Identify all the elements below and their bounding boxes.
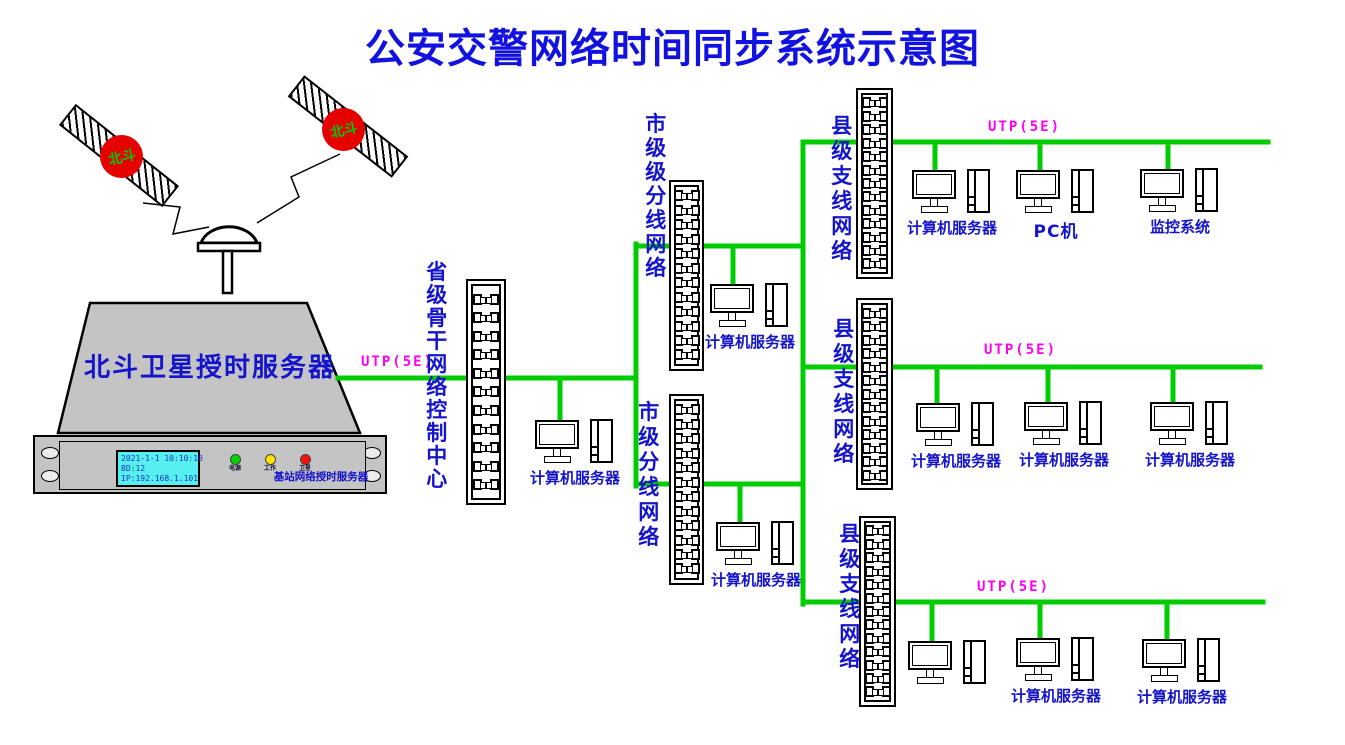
switch-county-3 [859,516,896,707]
monitor-screen [1020,174,1056,195]
computer-county2-server-1: 计算机服务器 [916,403,996,449]
rj45-port-icon [865,673,874,684]
rj45-port-icon [865,633,874,644]
rj45-port-icon [691,321,700,332]
rj45-port-icon [879,111,888,122]
port-row [865,593,891,604]
beidou-satellite-1: 北斗 [40,100,200,220]
rj45-port-icon [691,520,700,531]
rj45-port-icon [879,402,888,413]
port-row [865,633,891,644]
rj45-port-icon [691,448,700,459]
rj45-port-icon [879,245,888,256]
switch-county-1 [856,88,893,279]
rj45-port-icon [882,646,891,657]
rj45-port-icon [674,263,683,274]
rj45-port-icon [490,312,499,323]
rj45-port-icon [473,405,482,416]
port-row [862,191,888,202]
port-row [862,470,888,481]
label-municipal-1: 市级级分线网络 [644,112,668,280]
device-label: 监控系统 [1122,216,1238,237]
rj45-port-icon [490,386,499,397]
rj45-port-icon [879,348,888,359]
computer-county1-monitoring: 监控系统 [1140,169,1220,215]
port-row [674,263,700,274]
rack-hole [41,447,59,459]
rj45-port-icon [865,579,874,590]
computer-monitor-icon [1140,169,1184,198]
port-row [862,456,888,467]
computer-county3-server-3: 计算机服务器 [1142,639,1222,685]
rj45-port-icon [879,138,888,149]
rj45-port-icon [862,308,871,319]
port-row [862,362,888,373]
monitor-screen [920,407,956,428]
rj45-port-icon [473,331,482,342]
rj45-port-icon [674,234,683,245]
switch-county-2 [856,298,893,490]
switch-body [471,284,501,500]
rj45-port-icon [862,389,871,400]
rj45-port-icon [674,491,683,502]
monitor-screen [912,645,948,666]
port-row [674,433,700,444]
port-row [674,219,700,230]
port-row [473,461,499,472]
computer-county2-server-3: 计算机服务器 [1150,402,1230,448]
rj45-port-icon [490,442,499,453]
port-row [862,258,888,269]
computer-monitor-icon [1142,639,1186,668]
computer-county2-server-2: 计算机服务器 [1024,402,1104,448]
rj45-port-icon [691,219,700,230]
monitor-screen [916,174,952,195]
port-row [674,535,700,546]
port-row [674,477,700,488]
rj45-port-icon [473,349,482,360]
port-row [862,375,888,386]
rj45-port-icon [490,405,499,416]
port-row [865,646,891,657]
rj45-port-icon [691,306,700,317]
rj45-port-icon [674,462,683,473]
rj45-port-icon [865,552,874,563]
computer-tower-icon [590,419,613,463]
rj45-port-icon [490,461,499,472]
rj45-port-icon [879,375,888,386]
rj45-port-icon [882,673,891,684]
rj45-port-icon [862,362,871,373]
rj45-port-icon [882,593,891,604]
page-title: 公安交警网络时间同步系统示意图 [0,16,1345,74]
computer-county1-server: 计算机服务器 [912,170,992,216]
rj45-port-icon [490,349,499,360]
device-label: 计算机服务器 [1132,449,1248,470]
rj45-port-icon [473,479,482,490]
rj45-port-icon [862,335,871,346]
rj45-port-icon [674,520,683,531]
device-label: 计算机服务器 [517,467,633,488]
port-row [865,552,891,563]
lcd-time: 2021-1-1 10:10:10 [121,454,195,464]
switch-municipal-2 [669,394,704,585]
rj45-port-icon [879,97,888,108]
port-row [674,234,700,245]
monitor-screen [720,526,756,547]
monitor-screen [1028,406,1064,427]
rj45-port-icon [674,477,683,488]
rj45-port-icon [862,321,871,332]
utp-label-county-2: UTP(5E) [984,342,1057,358]
computer-tower-icon [1071,169,1094,213]
switch-body [864,521,891,702]
rj45-port-icon [674,549,683,560]
port-row [865,579,891,590]
rj45-port-icon [879,308,888,319]
rj45-port-icon [879,258,888,269]
rj45-port-icon [879,456,888,467]
rj45-port-icon [674,277,683,288]
port-row [674,404,700,415]
port-row [865,539,891,550]
gps-antenna-mast-icon [223,251,232,293]
device-label: 计算机服务器 [1006,449,1122,470]
front-panel-face: 2021-1-1 10:10:10 BD:12 IP:192.168.1.101… [59,441,366,490]
rj45-port-icon [862,375,871,386]
device-label: 计算机服务器 [698,569,814,590]
monitor-base [921,206,948,213]
monitor-screen [539,424,575,445]
monitor-screen [1154,406,1190,427]
computer-monitor-icon [1150,402,1194,431]
switch-body [674,399,699,580]
gps-antenna-dome-icon [201,227,257,243]
rj45-port-icon [879,218,888,229]
monitor-base [719,320,746,327]
label-county-2: 县级支线网络 [832,317,856,467]
satellite-body-icon: 北斗 [100,135,143,178]
rj45-port-icon [865,566,874,577]
led-dot [265,454,276,465]
rj45-port-icon [879,205,888,216]
rj45-port-icon [865,593,874,604]
monitor-base [917,677,944,684]
computer-county3-server-1 [908,641,988,687]
rj45-port-icon [879,362,888,373]
label-county-1: 县级支线网络 [830,114,854,264]
computer-tower-icon [963,640,986,684]
rj45-port-icon [882,579,891,590]
rj45-port-icon [473,294,482,305]
monitor-screen [1146,643,1182,664]
device-label: 计算机服务器 [894,217,1010,238]
rj45-port-icon [879,389,888,400]
rj45-port-icon [490,294,499,305]
port-row [865,606,891,617]
port-row [862,321,888,332]
monitor-base [1025,206,1052,213]
front-panel-model-label: 基站网络授时服务器 [265,469,377,484]
computer-tower-icon [771,521,794,565]
rj45-port-icon [862,258,871,269]
port-row [862,232,888,243]
rj45-port-icon [882,686,891,697]
computer-county3-server-2: 计算机服务器 [1016,638,1096,684]
rj45-port-icon [674,219,683,230]
rj45-port-icon [674,248,683,259]
port-row [674,277,700,288]
computer-tower-icon [967,169,990,213]
rj45-port-icon [691,549,700,560]
rj45-port-icon [865,539,874,550]
port-row [862,218,888,229]
rj45-port-icon [674,349,683,360]
rj45-port-icon [691,462,700,473]
port-row [862,443,888,454]
port-row [862,138,888,149]
monitor-base [1151,675,1178,682]
timing-server-name: 北斗卫星授时服务器 [75,347,345,384]
computer-tower-icon [1071,637,1094,681]
rj45-port-icon [879,165,888,176]
port-row [674,491,700,502]
computer-tower-icon [1195,168,1218,212]
port-row [674,321,700,332]
label-provincial-backbone: 省级骨干网络控制中心 [425,261,449,491]
rj45-port-icon [862,245,871,256]
computer-municipal-1-server: 计算机服务器 [710,284,790,330]
rj45-port-icon [674,404,683,415]
rj45-port-icon [879,151,888,162]
monitor-base [925,439,952,446]
rj45-port-icon [691,292,700,303]
rj45-port-icon [674,535,683,546]
device-label: 计算机服务器 [1124,686,1240,707]
rj45-port-icon [865,660,874,671]
port-row [862,178,888,189]
rj45-port-icon [862,456,871,467]
rj45-port-icon [691,263,700,274]
monitor-base [1149,205,1176,212]
computer-monitor-icon [1024,402,1068,431]
rj45-port-icon [862,191,871,202]
rj45-port-icon [862,218,871,229]
monitor-screen [1144,173,1180,194]
rj45-port-icon [862,138,871,149]
rj45-port-icon [882,606,891,617]
satellite-body-icon: 北斗 [322,108,365,151]
rj45-port-icon [691,477,700,488]
monitor-base [544,456,571,463]
computer-monitor-icon [916,403,960,432]
rack-hole [41,470,59,482]
rj45-port-icon [490,368,499,379]
device-label: 计算机服务器 [998,685,1114,706]
port-row [473,442,499,453]
monitor-base [1025,674,1052,681]
switch-body [861,303,888,485]
computer-county1-pc: PC机 [1016,170,1096,216]
rj45-port-icon [862,111,871,122]
rj45-port-icon [691,234,700,245]
rj45-port-icon [862,443,871,454]
port-row [862,335,888,346]
rj45-port-icon [674,335,683,346]
computer-tower-icon [1197,638,1220,682]
rj45-port-icon [691,190,700,201]
port-row [473,368,499,379]
rj45-port-icon [865,619,874,630]
led-dot [300,454,311,465]
port-row [862,416,888,427]
monitor-screen [1020,642,1056,663]
port-row [473,405,499,416]
port-row [674,292,700,303]
timing-server-front-panel: 2021-1-1 10:10:10 BD:12 IP:192.168.1.101… [33,435,387,494]
port-row [862,97,888,108]
lcd-ip: IP:192.168.1.101 [121,474,195,484]
port-row [674,448,700,459]
port-row [674,563,700,574]
rj45-port-icon [691,506,700,517]
port-row [674,205,700,216]
port-row [862,429,888,440]
rj45-port-icon [862,97,871,108]
computer-tower-icon [1205,401,1228,445]
port-row [862,389,888,400]
rj45-port-icon [865,525,874,536]
rj45-port-icon [879,321,888,332]
rj45-port-icon [674,190,683,201]
lcd-display: 2021-1-1 10:10:10 BD:12 IP:192.168.1.101 [116,450,200,487]
port-row [865,660,891,671]
port-row [862,151,888,162]
port-row [862,402,888,413]
rj45-port-icon [674,448,683,459]
rj45-port-icon [879,178,888,189]
rj45-port-icon [862,470,871,481]
rj45-port-icon [691,433,700,444]
port-row [473,386,499,397]
rj45-port-icon [882,552,891,563]
computer-tower-icon [971,402,994,446]
device-label: 计算机服务器 [692,331,808,352]
diagram-canvas: 公安交警网络时间同步系统示意图 北斗 北斗 北斗卫星授时服务器 2021-1-1… [0,0,1345,745]
led-power: 电源 [222,454,248,472]
port-row [862,245,888,256]
rj45-port-icon [674,563,683,574]
rj45-port-icon [879,443,888,454]
utp-label-county-3: UTP(5E) [977,579,1050,595]
computer-monitor-icon [908,641,952,670]
led-dot [230,454,241,465]
port-row [865,525,891,536]
rj45-port-icon [862,348,871,359]
device-label: PC机 [998,217,1114,242]
rj45-port-icon [882,633,891,644]
port-row [862,124,888,135]
port-row [862,308,888,319]
rj45-port-icon [691,248,700,259]
rj45-port-icon [865,646,874,657]
port-row [473,349,499,360]
switch-body [861,93,888,274]
port-row [674,462,700,473]
port-row [865,686,891,697]
rj45-port-icon [674,419,683,430]
rj45-port-icon [879,124,888,135]
port-row [674,190,700,201]
rj45-port-icon [862,402,871,413]
computer-monitor-icon [1016,638,1060,667]
rj45-port-icon [879,416,888,427]
rj45-port-icon [691,419,700,430]
computer-monitor-icon [710,284,754,313]
rj45-port-icon [882,566,891,577]
computer-provincial-server: 计算机服务器 [535,420,615,466]
led-label: 电源 [222,465,248,472]
port-row [473,424,499,435]
beidou-satellite-2: 北斗 [270,70,430,190]
port-row [674,248,700,259]
computer-tower-icon [1079,401,1102,445]
monitor-base [725,558,752,565]
rj45-port-icon [691,404,700,415]
utp-label-county-1: UTP(5E) [988,119,1061,135]
rj45-port-icon [473,368,482,379]
rj45-port-icon [865,686,874,697]
label-county-3: 县级支线网络 [838,522,862,672]
rj45-port-icon [473,386,482,397]
device-label: 计算机服务器 [898,450,1014,471]
port-row [862,111,888,122]
rj45-port-icon [473,424,482,435]
rj45-port-icon [879,470,888,481]
rj45-port-icon [691,277,700,288]
monitor-base [1159,438,1186,445]
monitor-screen [714,288,750,309]
utp-label-backbone: UTP(5E) [361,354,434,370]
rj45-port-icon [674,205,683,216]
rj45-port-icon [862,165,871,176]
port-row [862,205,888,216]
rj45-port-icon [862,151,871,162]
satellite-label: 北斗 [106,144,138,169]
rj45-port-icon [691,535,700,546]
port-row [473,312,499,323]
port-row [674,306,700,317]
rj45-port-icon [865,606,874,617]
rj45-port-icon [490,331,499,342]
rj45-port-icon [674,306,683,317]
rj45-port-icon [862,416,871,427]
rj45-port-icon [862,178,871,189]
port-row [674,520,700,531]
satellite-label: 北斗 [328,117,360,142]
port-row [865,619,891,630]
lcd-bd-count: BD:12 [121,464,195,474]
rj45-port-icon [862,124,871,135]
rj45-port-icon [882,619,891,630]
port-row [865,673,891,684]
port-row [865,566,891,577]
port-row [674,419,700,430]
rj45-port-icon [674,292,683,303]
rj45-port-icon [490,424,499,435]
rj45-port-icon [674,506,683,517]
port-row [473,479,499,490]
